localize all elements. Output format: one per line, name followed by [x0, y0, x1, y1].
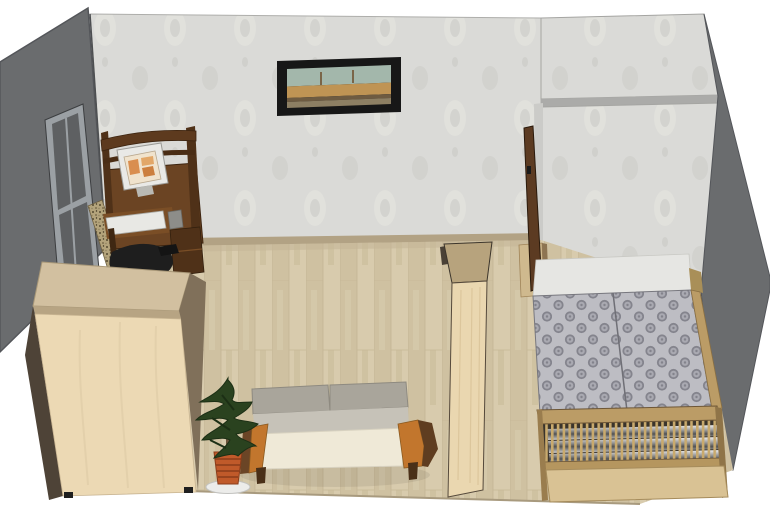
wardrobe-foot: [64, 492, 73, 498]
bed-covers[interactable]: [533, 290, 712, 414]
divider-front[interactable]: [448, 281, 487, 497]
render-viewport: [0, 0, 770, 520]
bed-base-panel[interactable]: [546, 466, 728, 502]
painting[interactable]: [277, 57, 401, 116]
painting-tower: [320, 72, 322, 85]
door-handle[interactable]: [527, 166, 531, 174]
painting-tower: [352, 70, 354, 83]
speaker[interactable]: [168, 210, 183, 229]
alcove-back-wall[interactable]: [541, 14, 719, 99]
sofa-back-cushion-left[interactable]: [252, 385, 330, 414]
sofa-leg-right: [408, 462, 418, 480]
sofa-seat-panel[interactable]: [257, 428, 407, 469]
screen-window-right-bottom: [142, 166, 155, 177]
divider-top[interactable]: [444, 242, 492, 283]
sofa-leg-left: [256, 467, 266, 484]
wardrobe-front[interactable]: [35, 314, 196, 496]
wardrobe-foot: [184, 487, 193, 493]
sofa-back-cushion-right[interactable]: [330, 382, 408, 411]
screen-window-left: [128, 159, 140, 175]
wardrobe[interactable]: [25, 262, 206, 500]
double-bed[interactable]: [533, 254, 728, 502]
